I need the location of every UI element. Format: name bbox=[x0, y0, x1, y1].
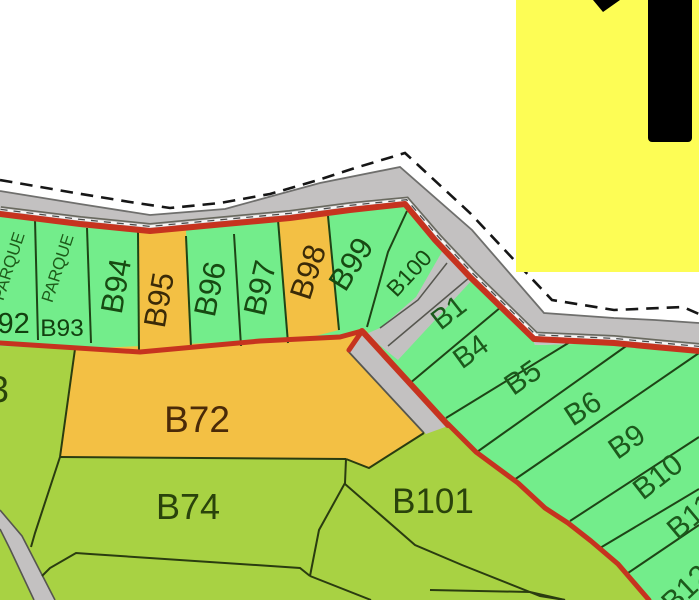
svg-text:B74: B74 bbox=[156, 486, 220, 527]
svg-text:B101: B101 bbox=[392, 482, 474, 521]
svg-text:B93: B93 bbox=[40, 315, 84, 342]
svg-text:B92: B92 bbox=[0, 308, 30, 340]
svg-text:B72: B72 bbox=[164, 399, 230, 440]
svg-text:B73: B73 bbox=[0, 369, 9, 410]
